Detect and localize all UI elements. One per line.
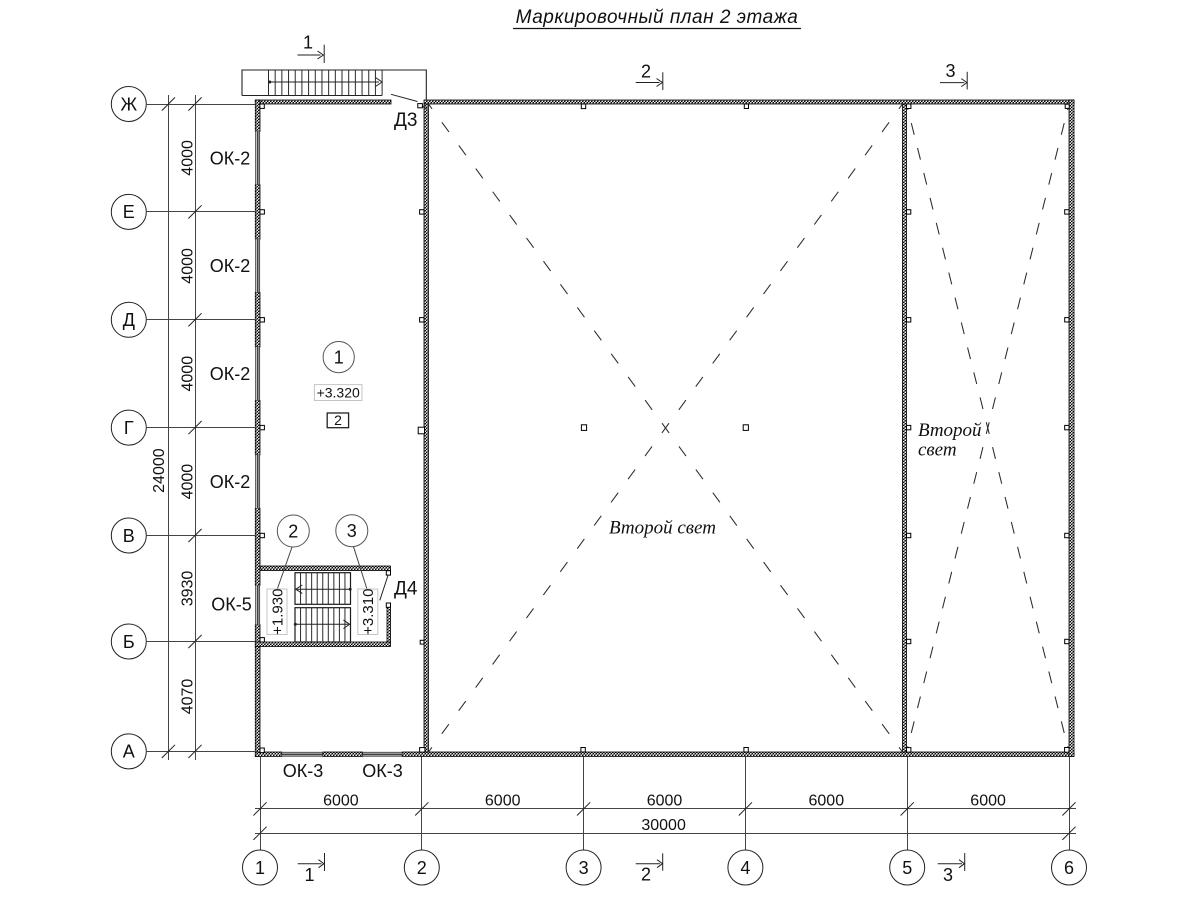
svg-text:+3.320: +3.320 <box>317 384 360 400</box>
svg-text:ОК-2: ОК-2 <box>210 364 251 384</box>
svg-text:Д: Д <box>123 310 135 330</box>
svg-text:6000: 6000 <box>970 793 1006 810</box>
svg-text:Д3: Д3 <box>394 110 417 131</box>
svg-text:свет: свет <box>918 440 957 461</box>
svg-text:4070: 4070 <box>180 679 197 715</box>
svg-text:6: 6 <box>1064 858 1074 878</box>
svg-text:4000: 4000 <box>180 356 197 392</box>
svg-text:ОК-2: ОК-2 <box>210 256 251 276</box>
svg-text:2: 2 <box>641 865 651 885</box>
svg-text:ОК-3: ОК-3 <box>362 761 403 781</box>
svg-text:2: 2 <box>641 61 651 81</box>
svg-text:Ж: Ж <box>120 94 137 114</box>
svg-text:Б: Б <box>123 632 135 652</box>
svg-text:2: 2 <box>288 521 298 541</box>
svg-text:30000: 30000 <box>641 817 686 834</box>
svg-text:6000: 6000 <box>323 793 359 810</box>
svg-text:6000: 6000 <box>809 793 845 810</box>
svg-text:+1.930: +1.930 <box>270 589 287 635</box>
svg-text:24000: 24000 <box>151 448 168 493</box>
svg-text:4000: 4000 <box>180 464 197 500</box>
svg-text:3: 3 <box>945 61 955 81</box>
svg-text:5: 5 <box>902 858 912 878</box>
svg-text:4: 4 <box>740 858 750 878</box>
svg-text:ОК-2: ОК-2 <box>210 148 251 168</box>
svg-text:3: 3 <box>347 521 357 541</box>
svg-text:3: 3 <box>579 858 589 878</box>
svg-text:6000: 6000 <box>485 793 521 810</box>
svg-text:Г: Г <box>124 418 134 438</box>
svg-text:4000: 4000 <box>180 140 197 176</box>
svg-text:1: 1 <box>334 347 344 367</box>
svg-text:А: А <box>123 742 135 762</box>
svg-text:Маркировочный план 2 этажа: Маркировочный план 2 этажа <box>516 7 799 28</box>
svg-text:В: В <box>123 526 135 546</box>
svg-text:+3.310: +3.310 <box>360 589 377 635</box>
svg-text:3930: 3930 <box>180 571 197 607</box>
svg-text:Второй свет: Второй свет <box>609 518 716 539</box>
svg-text:ОК-5: ОК-5 <box>211 594 252 614</box>
svg-text:Д4: Д4 <box>394 579 418 600</box>
svg-text:3: 3 <box>943 865 953 885</box>
svg-text:Второй: Второй <box>918 420 982 441</box>
svg-text:1: 1 <box>303 33 313 53</box>
svg-text:2: 2 <box>334 412 342 428</box>
svg-text:1: 1 <box>255 858 265 878</box>
svg-text:ОК-3: ОК-3 <box>283 761 324 781</box>
svg-text:4000: 4000 <box>180 248 197 284</box>
svg-text:1: 1 <box>304 865 314 885</box>
svg-text:Е: Е <box>123 202 135 222</box>
svg-text:ОК-2: ОК-2 <box>210 472 251 492</box>
svg-text:2: 2 <box>417 858 427 878</box>
svg-text:6000: 6000 <box>647 793 683 810</box>
